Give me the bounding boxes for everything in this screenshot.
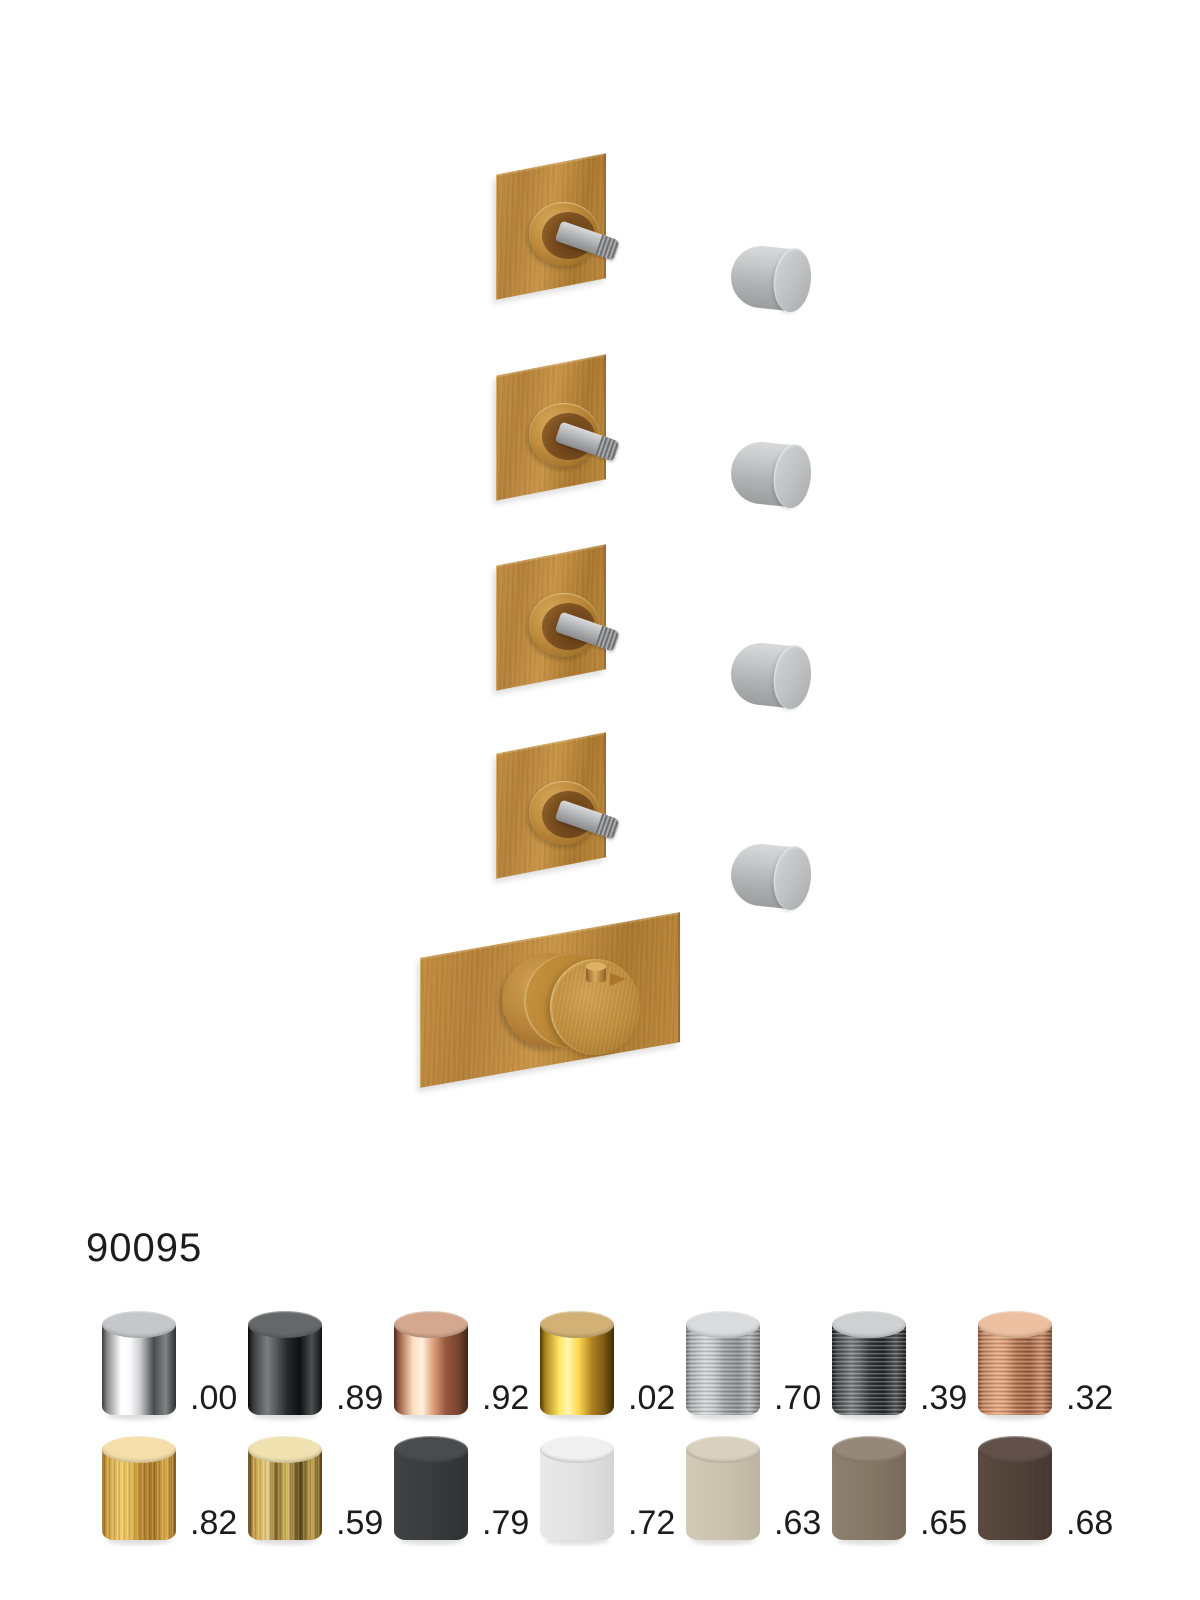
thermostat-indicator: [610, 973, 626, 986]
swatch-top-face: [540, 1311, 614, 1338]
finish-option-00: .00: [102, 1311, 248, 1417]
volume-control-trim-2: [496, 365, 606, 490]
finish-code-32: .32: [1066, 1381, 1113, 1415]
finish-code-02: .02: [628, 1381, 675, 1415]
finish-swatch-82-brushed-gold: [102, 1436, 176, 1540]
finish-row-1: .00.89.92.02.70.39.32: [102, 1311, 1124, 1417]
finish-option-63: .63: [686, 1436, 832, 1542]
finish-code-82: .82: [190, 1506, 237, 1540]
finish-option-68: .68: [978, 1436, 1124, 1542]
finish-code-92: .92: [482, 1381, 529, 1415]
swatch-top-face: [248, 1311, 322, 1338]
finish-swatch-70-brushed-nickel: [686, 1311, 760, 1415]
finish-swatch-68-matte-dark-brown: [978, 1436, 1052, 1540]
swatch-top-face: [686, 1436, 760, 1463]
finish-option-59: .59: [248, 1436, 394, 1542]
finish-code-68: .68: [1066, 1506, 1113, 1540]
finish-option-79: .79: [394, 1436, 540, 1542]
finish-code-72: .72: [628, 1506, 675, 1540]
finish-swatch-59-brushed-antique-brass: [248, 1436, 322, 1540]
swatch-top-face: [978, 1436, 1052, 1463]
finish-option-39: .39: [832, 1311, 978, 1417]
handle-cylinder-3: [728, 639, 814, 711]
swatch-top-face: [978, 1311, 1052, 1338]
handle-cylinder-2: [728, 438, 814, 510]
finish-swatch-79-matte-black: [394, 1436, 468, 1540]
finish-swatch-02-polished-gold: [540, 1311, 614, 1415]
finish-swatch-89-polished-black-chrome: [248, 1311, 322, 1415]
swatch-top-face: [540, 1436, 614, 1463]
volume-control-trim-4: [496, 743, 606, 868]
finish-swatch-65-matte-taupe: [832, 1436, 906, 1540]
finish-swatch-00-polished-chrome: [102, 1311, 176, 1415]
finish-option-65: .65: [832, 1436, 978, 1542]
finish-swatch-92-polished-rose-gold: [394, 1311, 468, 1415]
swatch-top-face: [832, 1311, 906, 1338]
finish-option-82: .82: [102, 1436, 248, 1542]
finish-option-32: .32: [978, 1311, 1124, 1417]
finish-option-70: .70: [686, 1311, 832, 1417]
swatch-top-face: [832, 1436, 906, 1463]
finish-code-79: .79: [482, 1506, 529, 1540]
product-code: 90095: [86, 1228, 202, 1268]
swatch-top-face: [102, 1311, 176, 1338]
swatch-top-face: [248, 1436, 322, 1463]
swatch-top-face: [102, 1436, 176, 1463]
thermostatic-trim: [420, 935, 680, 1065]
finish-swatch-63-matte-greige: [686, 1436, 760, 1540]
volume-control-trim-3: [496, 555, 606, 680]
finish-option-72: .72: [540, 1436, 686, 1542]
finish-code-65: .65: [920, 1506, 967, 1540]
volume-control-trim-1: [496, 164, 606, 289]
finish-option-02: .02: [540, 1311, 686, 1417]
finish-swatch-39-brushed-gunmetal: [832, 1311, 906, 1415]
finish-code-00: .00: [190, 1381, 237, 1415]
finish-option-92: .92: [394, 1311, 540, 1417]
catalog-page: 90095 .00.89.92.02.70.39.32 .82.59.79.72…: [0, 0, 1200, 1600]
swatch-top-face: [394, 1311, 468, 1338]
finish-code-70: .70: [774, 1381, 821, 1415]
handle-cylinder-1: [728, 242, 814, 314]
handle-cylinder-4: [728, 840, 814, 912]
finish-row-2: .82.59.79.72.63.65.68: [102, 1436, 1124, 1542]
finish-code-89: .89: [336, 1381, 383, 1415]
finish-swatch-32-brushed-copper: [978, 1311, 1052, 1415]
finish-code-63: .63: [774, 1506, 821, 1540]
finish-code-59: .59: [336, 1506, 383, 1540]
swatch-top-face: [394, 1436, 468, 1463]
finish-swatch-72-matte-white: [540, 1436, 614, 1540]
swatch-top-face: [686, 1311, 760, 1338]
finish-code-39: .39: [920, 1381, 967, 1415]
finish-option-89: .89: [248, 1311, 394, 1417]
thermostat-button: [586, 966, 606, 982]
